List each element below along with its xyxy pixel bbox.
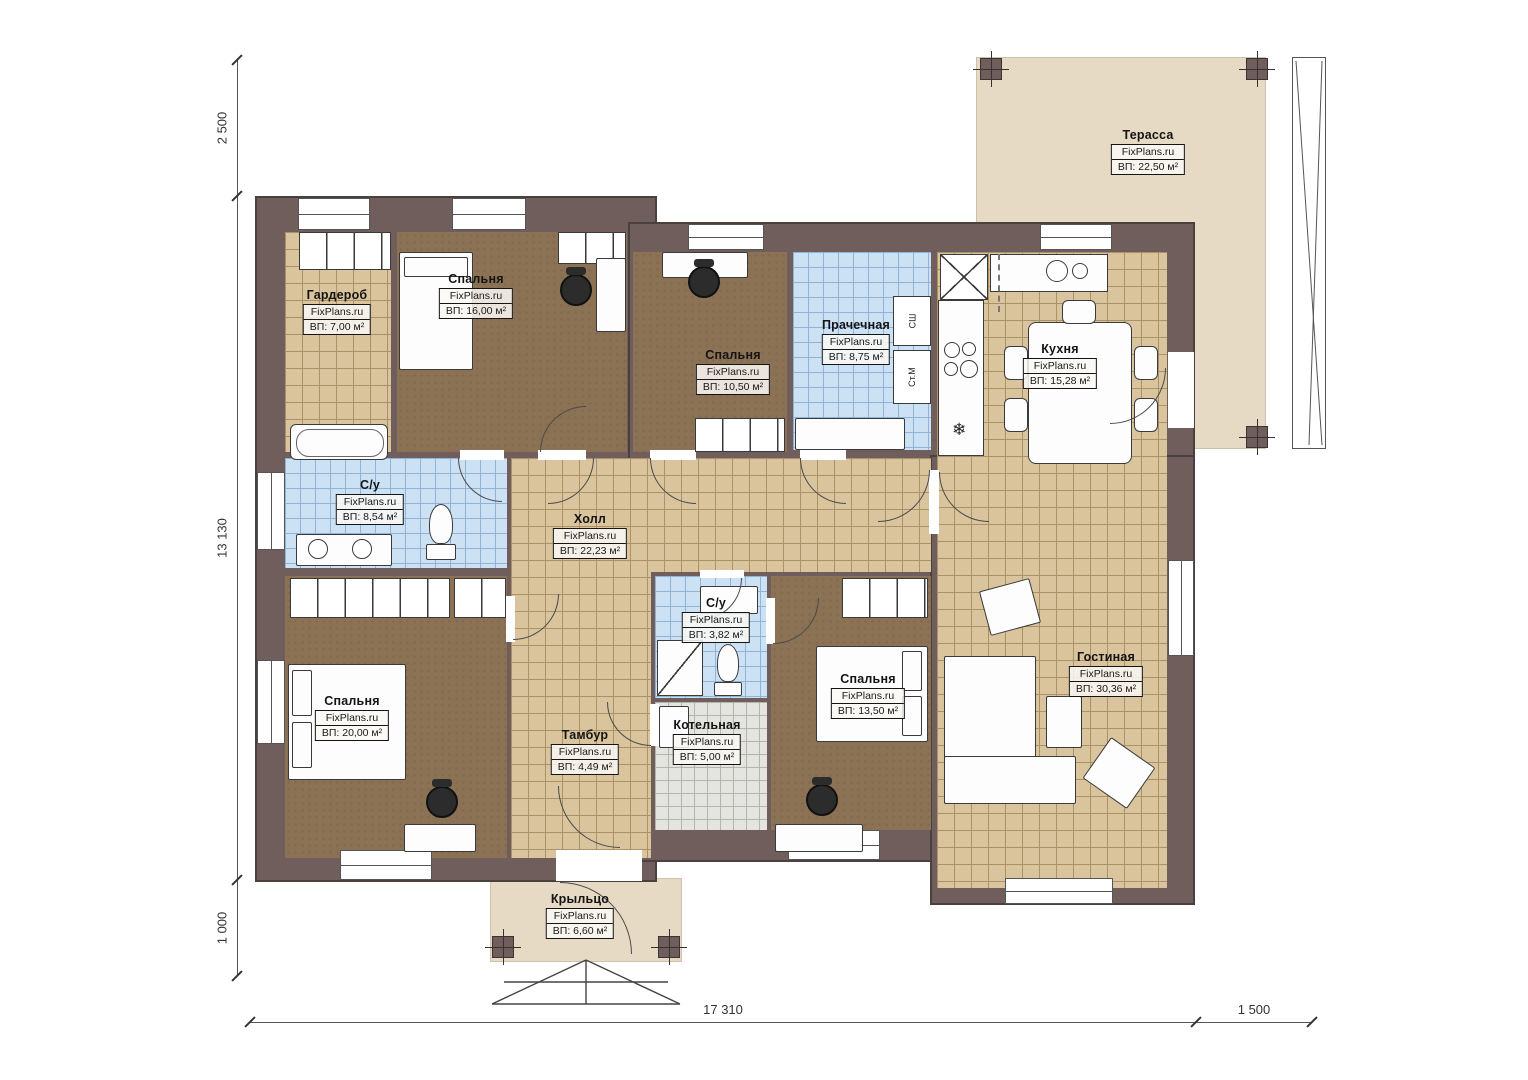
dining-chair [1062, 300, 1096, 324]
brand-label: FixPlans.ru [1024, 359, 1096, 373]
dim-value-17310: 17 310 [703, 1002, 743, 1017]
room-name: Котельная [673, 718, 741, 732]
room-area: ВП: 16,00 м² [440, 303, 512, 318]
room-name: Спальня [315, 694, 389, 708]
room-area: ВП: 4,49 м² [552, 759, 618, 774]
brand-label: FixPlans.ru [674, 735, 740, 749]
room-label-bedroom20: Спальня FixPlans.ruВП: 20,00 м² [315, 694, 389, 741]
brand-label: FixPlans.ru [554, 529, 626, 543]
brand-label: FixPlans.ru [823, 335, 889, 349]
room-label-living: Гостиная FixPlans.ruВП: 30,36 м² [1069, 650, 1143, 697]
terrace-post [980, 58, 1002, 80]
porch-post [658, 936, 680, 958]
room-label-garderob: Гардероб FixPlans.ruВП: 7,00 м² [303, 288, 371, 335]
stove-burner [944, 362, 958, 376]
brand-label: FixPlans.ru [337, 495, 403, 509]
door-opening-terrace [1168, 352, 1194, 428]
closet [299, 232, 391, 270]
brand-label: FixPlans.ru [552, 745, 618, 759]
window-bath-left [257, 472, 285, 550]
brand-label: FixPlans.ru [440, 289, 512, 303]
room-area: ВП: 8,75 м² [823, 349, 889, 364]
desk [404, 824, 476, 852]
room-name: Крыльцо [546, 892, 614, 906]
window-bedroom105-top [688, 224, 764, 250]
room-label-laundry: Прачечная FixPlans.ruВП: 8,75 м² [822, 318, 890, 365]
room-name: С/у [336, 478, 404, 492]
washer-label: Ст.М [907, 367, 917, 387]
room-name: Кухня [1023, 342, 1097, 356]
pillow [292, 722, 312, 768]
office-chair [426, 786, 458, 818]
vent-duct-line [998, 254, 1000, 312]
office-chair [688, 266, 720, 298]
dimension-line-horizontal [250, 1022, 1312, 1023]
stove-burner [960, 360, 978, 378]
brand-label: FixPlans.ru [683, 613, 749, 627]
door-opening-bath-small [700, 570, 744, 578]
window-garderob-top [298, 198, 370, 230]
room-area: ВП: 3,82 м² [683, 627, 749, 642]
porch-post [492, 936, 514, 958]
brand-label: FixPlans.ru [304, 305, 370, 319]
dim-value-13130: 13 130 [215, 518, 230, 558]
room-area: ВП: 22,50 м² [1112, 159, 1184, 174]
room-area: ВП: 8,54 м² [337, 509, 403, 524]
brand-label: FixPlans.ru [697, 365, 769, 379]
sink-bowl [1046, 260, 1068, 282]
room-label-bedroom105: Спальня FixPlans.ruВП: 10,50 м² [696, 348, 770, 395]
wash-basin [352, 539, 372, 559]
room-area: ВП: 22,23 м² [554, 543, 626, 558]
room-area: ВП: 7,00 м² [304, 319, 370, 334]
window-bedroom20-bottom [340, 850, 432, 880]
room-name: Тамбур [551, 728, 619, 742]
room-area: ВП: 15,28 м² [1024, 373, 1096, 388]
room-label-bath-main: С/у FixPlans.ruВП: 8,54 м² [336, 478, 404, 525]
room-label-boiler: Котельная FixPlans.ruВП: 5,00 м² [673, 718, 741, 765]
dim-value-1000: 1 000 [215, 912, 230, 945]
window-kitchen-top [1040, 224, 1112, 250]
room-label-bedroom135: Спальня FixPlans.ruВП: 13,50 м² [831, 672, 905, 719]
brand-label: FixPlans.ru [1070, 667, 1142, 681]
porch-steps [490, 958, 682, 1015]
office-chair [560, 274, 592, 306]
room-label-porch: Крыльцо FixPlans.ruВП: 6,60 м² [546, 892, 614, 939]
brand-label: FixPlans.ru [547, 909, 613, 923]
room-label-hall: Холл FixPlans.ruВП: 22,23 м² [553, 512, 627, 559]
room-area: ВП: 30,36 м² [1070, 681, 1142, 696]
room-name: Прачечная [822, 318, 890, 332]
washing-machine: Ст.М [893, 350, 931, 404]
desk [775, 824, 863, 852]
coffee-table [1046, 696, 1082, 748]
toilet-tank [426, 544, 456, 560]
floor-plan: СШ Ст.М ❄ [0, 0, 1528, 1080]
desk [596, 258, 626, 332]
room-name: Гостиная [1069, 650, 1143, 664]
door-opening-entry [556, 850, 642, 881]
room-label-terrace: Терасса FixPlans.ruВП: 22,50 м² [1111, 128, 1185, 175]
dryer-cabinet: СШ [893, 296, 931, 346]
room-area: ВП: 20,00 м² [316, 725, 388, 740]
room-name: Спальня [831, 672, 905, 686]
room-area: ВП: 6,60 м² [547, 923, 613, 938]
room-name: Гардероб [303, 288, 371, 302]
brand-label: FixPlans.ru [832, 689, 904, 703]
room-area: ВП: 13,50 м² [832, 703, 904, 718]
bathtub-inner [296, 429, 384, 457]
room-name: Спальня [696, 348, 770, 362]
dim-value-1500: 1 500 [1238, 1002, 1271, 1017]
brand-label: FixPlans.ru [1112, 145, 1184, 159]
closet [842, 578, 928, 618]
room-name: С/у [682, 596, 750, 610]
window-living-bottom [1005, 878, 1113, 904]
door-opening-boiler [650, 704, 659, 746]
room-name: Спальня [439, 272, 513, 286]
room-label-bedroom16: Спальня FixPlans.ruВП: 16,00 м² [439, 272, 513, 319]
sofa-chaise [944, 756, 1076, 804]
closet [695, 418, 785, 452]
window-bedroom16-top [452, 198, 526, 230]
room-label-kitchen: Кухня FixPlans.ruВП: 15,28 м² [1023, 342, 1097, 389]
dimension-line-vertical [237, 60, 238, 976]
laundry-shelf [795, 418, 905, 450]
brand-label: FixPlans.ru [316, 711, 388, 725]
dining-chair [1004, 398, 1028, 432]
shower [657, 640, 703, 696]
toilet-bowl [717, 644, 739, 682]
office-chair [806, 784, 838, 816]
room-label-tambur: Тамбур FixPlans.ruВП: 4,49 м² [551, 728, 619, 775]
room-label-bath-small: С/у FixPlans.ruВП: 3,82 м² [682, 596, 750, 643]
terrace-post [1246, 426, 1268, 448]
door-opening-kitchen-hall [929, 470, 939, 534]
snowflake-symbol: ❄ [952, 420, 966, 440]
window-bedroom20-left [257, 660, 285, 744]
room-name: Холл [553, 512, 627, 526]
terrace-post [1246, 58, 1268, 80]
toilet-tank [714, 682, 742, 696]
room-name: Терасса [1111, 128, 1185, 142]
toilet-bowl [429, 504, 453, 544]
room-area: ВП: 5,00 м² [674, 749, 740, 764]
dim-value-2500: 2 500 [215, 112, 230, 145]
pillow [292, 670, 312, 716]
closet [454, 578, 506, 618]
window-living-right [1168, 560, 1194, 656]
closet [290, 578, 450, 618]
stove-burner [962, 342, 976, 356]
stove-burner [944, 342, 960, 358]
room-area: ВП: 10,50 м² [697, 379, 769, 394]
terrace-pergola [1292, 57, 1326, 449]
sink-bowl [1072, 263, 1088, 279]
fridge [940, 254, 988, 300]
dryer-label: СШ [907, 314, 917, 329]
wash-basin [308, 539, 328, 559]
